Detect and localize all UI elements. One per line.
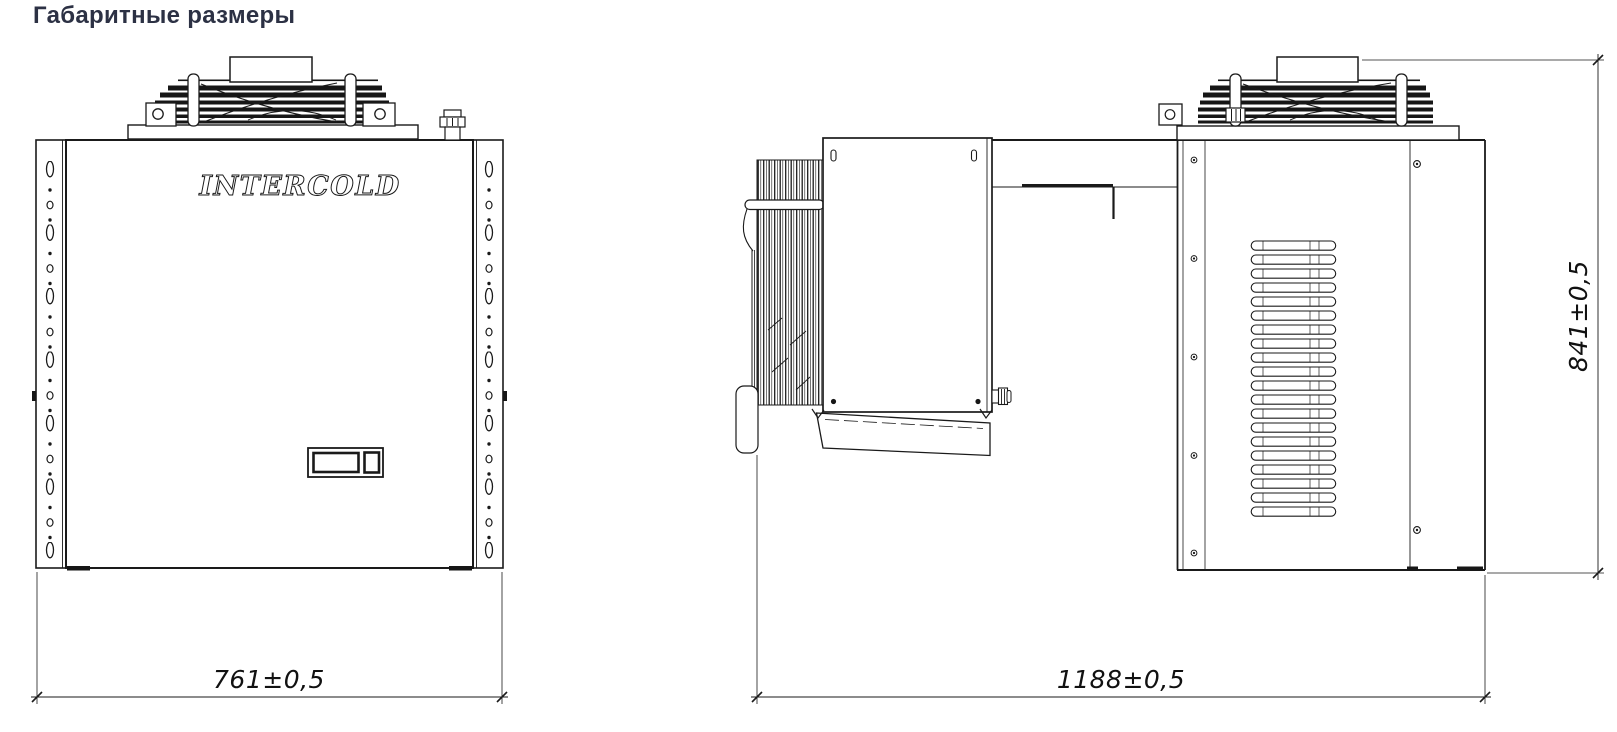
ventilation-grille — [1250, 240, 1337, 520]
fan-shroud-edge — [736, 386, 758, 453]
evaporator-section — [736, 138, 1011, 456]
screw-slot — [831, 150, 836, 161]
front-view: INTERCOLD — [32, 57, 507, 571]
condenser-fan-assembly-side — [1159, 57, 1459, 140]
dimension-label-front-width: 761±0,5 — [213, 665, 325, 694]
pipe-bend — [743, 209, 753, 251]
control-panel — [308, 448, 383, 477]
page: Габаритные размеры — [0, 0, 1617, 732]
brand-logo: INTERCOLD — [198, 171, 400, 202]
condenser-fan-assembly-front — [128, 57, 418, 139]
cable-gland-side — [992, 388, 1011, 405]
fitting-nut — [1226, 108, 1245, 122]
cable-gland-front — [440, 110, 465, 140]
mounting-band — [992, 186, 1177, 220]
drain-pan — [817, 413, 991, 456]
unit-body-front — [66, 140, 473, 571]
mounting-rail-left — [32, 140, 66, 568]
rear-panel-screws — [1414, 161, 1421, 534]
dimensional-drawing: INTERCOLD — [0, 0, 1617, 732]
dimension-label-side-height: 841±0,5 — [1564, 260, 1593, 372]
dimension-side-depth: 1188±0,5 — [751, 455, 1491, 704]
guard-post — [1396, 74, 1407, 126]
dimension-front-width: 761±0,5 — [31, 572, 508, 704]
evaporator-housing-panel — [823, 138, 992, 412]
evaporator-fins — [757, 160, 823, 405]
side-view — [736, 57, 1485, 571]
sensor-pipe — [745, 200, 824, 210]
mounting-rail-right — [473, 140, 507, 568]
screw — [831, 399, 836, 404]
fan-motor-box — [230, 57, 312, 82]
display-button — [365, 453, 380, 473]
screw-slot — [972, 150, 977, 161]
unit-body-side — [992, 140, 1485, 571]
display-screen — [314, 453, 359, 472]
edge-strip-screws — [1191, 157, 1197, 556]
dimension-label-side-depth: 1188±0,5 — [1057, 665, 1185, 694]
fan-motor-box — [1277, 57, 1358, 82]
guard-post — [345, 74, 356, 126]
screw — [975, 399, 980, 404]
guard-post — [188, 74, 199, 126]
